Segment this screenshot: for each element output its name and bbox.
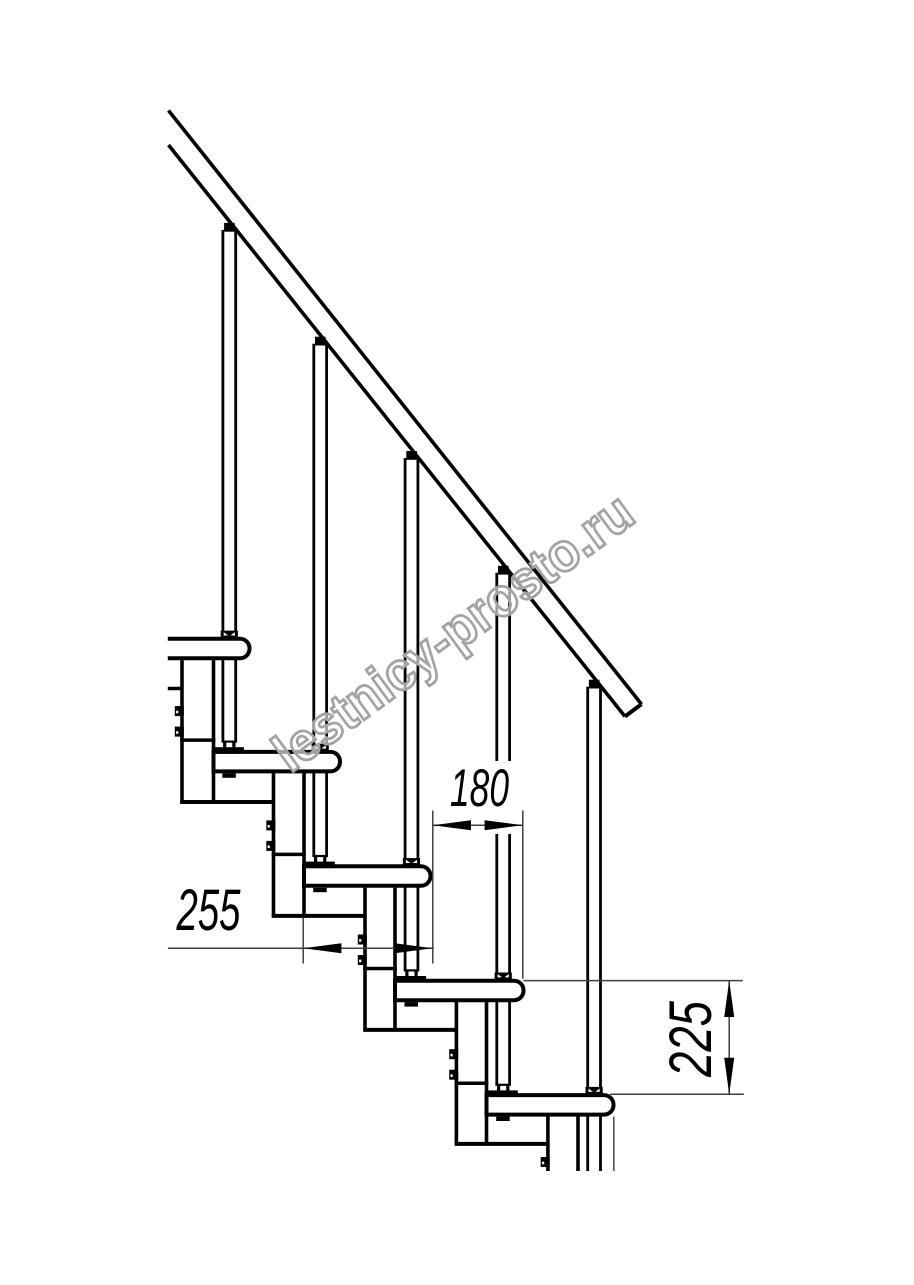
svg-text:255: 255	[176, 878, 241, 943]
svg-text:225: 225	[657, 1001, 724, 1078]
svg-text:180: 180	[450, 759, 509, 818]
